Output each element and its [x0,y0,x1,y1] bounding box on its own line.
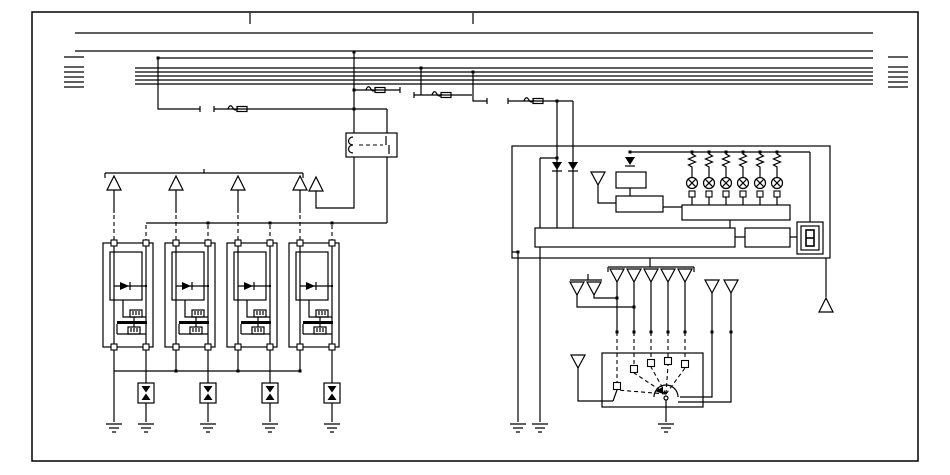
junction-dot [353,108,356,111]
transistor-icon [257,311,263,315]
ground-icon [262,424,278,432]
spark-gap [324,383,340,422]
junction-dot [725,151,728,154]
connector-triangle-up [309,177,323,191]
terminal-square [205,240,211,246]
ground-icon [324,424,340,432]
signal-wires-dashed [617,332,685,353]
lamp-icon [739,179,747,187]
unit-leads [238,350,270,383]
rotor-shaft-icon [664,396,668,400]
unit-wires [238,246,270,344]
cap-terminal-square [648,360,655,367]
junction-dot [556,157,559,160]
gap-triangle-down [204,386,213,393]
cap-terminal-square [614,383,621,390]
igniter-bar [303,321,333,324]
junction-dot [616,297,619,300]
junction-dot [353,89,356,92]
junction-dot [556,100,559,103]
transistor-icon [193,328,199,332]
ground-icon [510,424,526,432]
connector-triangle-down [705,280,719,293]
resistor-icon [740,152,747,177]
ignition-coil-bank [103,240,339,383]
indicator-lamp [755,152,766,205]
ecu-module [512,146,830,422]
spark-gaps [138,383,340,422]
terminal-square [173,240,179,246]
border-tick-marks [250,13,473,24]
supply-drop-wires [146,225,332,240]
connector-triangle-up [169,176,183,190]
coil-primary-box [296,252,328,300]
relay-contact-icon [386,136,389,154]
connector-triangle-down [570,282,584,295]
unit-wires [300,246,332,344]
lamp-icon [705,179,713,187]
resistor-icon [723,152,730,177]
fuse-symbols [228,87,543,112]
diode-icon [625,157,635,165]
ignition-coil-unit [103,240,153,383]
ecu-logic-box-small [616,172,646,188]
junction-dot [633,331,636,334]
diode-icon [552,162,562,170]
terminal-square [235,344,241,350]
ground-icon [138,424,154,432]
ground-icon [106,424,122,432]
ground-icon [532,424,548,432]
terminal-square [173,344,179,350]
indicator-lamp [687,152,698,205]
junction-dot [353,51,356,54]
ignition-coil-unit [227,240,277,383]
connector-triangle-down [610,269,624,282]
coil-primary-box [172,252,204,300]
wiring-schematic [0,0,950,475]
bus-wires [75,33,873,84]
diode-icon [120,282,129,290]
trigger-wires-dashed [114,215,300,240]
junction-dot [650,331,653,334]
indicator-lamp [704,152,715,205]
junction-dot [691,151,694,154]
spark-gap [200,383,216,422]
connector-triangle-up [231,176,245,190]
ignition-coil-unit [165,240,215,383]
lamp-terminal-square [740,191,746,197]
lamp-terminal-square [723,191,729,197]
connector-triangle-down [571,355,585,368]
junction-dot [517,251,520,254]
transistor-icon [195,311,201,315]
coil-primary-box [110,252,142,300]
terminal-square [205,344,211,350]
junction-dot [633,306,636,309]
junction-dot [684,331,687,334]
unit-wires [114,246,146,344]
junction-dot [157,57,160,60]
terminal-square [143,240,149,246]
terminal-square [297,344,303,350]
cap-terminal-square [665,358,672,365]
ignition-coil-unit [289,240,339,383]
diode-icon [182,282,191,290]
indicator-lamp [772,152,783,205]
lamp-icon [688,179,696,187]
lamp-icon [722,179,730,187]
connector-triangle-up [819,298,833,312]
diodes [552,157,635,171]
unit-leads [114,350,146,383]
connector-triangle-up [293,176,307,190]
igniter-bar [241,321,271,324]
junction-dot [145,285,147,287]
diode-icon [568,162,578,170]
connector-triangle-down [627,269,641,282]
gap-triangle-down [328,386,337,393]
lamp-terminal-square [774,191,780,197]
transistor-icon [255,328,261,332]
gap-triangle-up [204,394,213,401]
spark-gap [138,383,154,422]
transistor-icon [131,328,137,332]
junction-dot [730,331,733,334]
resistor-icon [774,152,781,177]
terminal-square [111,240,117,246]
page-border [32,12,918,461]
gap-triangle-up [266,394,275,401]
relay-coil-icon [349,137,354,153]
junction-dot [269,222,272,225]
gap-triangle-down [266,386,275,393]
lamp-terminal-square [706,191,712,197]
ecu-lamp-module [682,205,790,220]
connector-triangle-down [661,269,675,282]
gap-triangle-up [142,394,151,401]
coil-bank-feed [105,169,387,240]
terminal-square [143,344,149,350]
cap-terminal-square [682,361,689,368]
junction-dot [331,285,333,287]
fuse-feed-chain [158,52,573,228]
diode-icon [306,282,315,290]
lamp-icon [756,179,764,187]
junction-dot [667,331,670,334]
junction-dot [629,151,632,154]
connector-triangle-down [644,269,658,282]
lamp-icon [773,179,781,187]
lamp-terminal-square [757,191,763,197]
indicator-lamp [721,152,732,205]
indicator-lamps [687,152,783,205]
junction-dot [207,222,210,225]
unit-leads [300,350,332,383]
unit-wires [176,246,208,344]
junction-dot [759,151,762,154]
junction-dot [742,151,745,154]
junction-dot [420,67,423,70]
transistor-icon [319,311,325,315]
junction-dot [776,151,779,154]
terminal-square [267,240,273,246]
ecu-logic-box-large [616,196,663,212]
junction-dot [175,370,178,373]
connector-wires [570,258,826,422]
resistor-icon [689,152,696,177]
terminal-square [235,240,241,246]
seven-segment-digit [806,230,814,246]
trigger-connector-bar [105,169,303,178]
transistor-icon [133,311,139,315]
ignition-relay [316,133,397,223]
gap-triangle-down [142,386,151,393]
schematic-page [0,0,950,475]
connector-triangle-down [678,269,692,282]
igniter-bar [117,321,147,324]
distributor-section [570,258,826,422]
feed-wires [158,52,573,228]
connector-triangle-down [591,172,605,185]
ground-icon [658,424,674,432]
unit-leads [176,350,208,383]
ecu-main-board [535,228,735,247]
trigger-wires [114,190,300,213]
terminal-square [111,344,117,350]
indicator-lamp [738,152,749,205]
junction-dot [711,331,714,334]
terminal-square [329,344,335,350]
connector-triangle-down [724,280,738,293]
resistor-icon [757,152,764,177]
connector-triangle-down [587,282,601,295]
ground-symbols [106,424,674,432]
lamp-terminal-square [689,191,695,197]
igniter-bar [179,321,209,324]
junction-dot [207,285,209,287]
junction-dot [616,331,619,334]
terminal-square [297,240,303,246]
junction-dot [237,370,240,373]
connector-triangle-up [107,176,121,190]
transistor-icon [317,328,323,332]
ecu-driver-box [745,228,790,247]
junction-dot [331,222,334,225]
power-bus [64,33,908,87]
diode-icon [244,282,253,290]
coil-primary-box [234,252,266,300]
connector-triangles [107,172,833,368]
terminal-square [329,240,335,246]
junction-dot [472,71,475,74]
border-rect [32,12,918,461]
junction-dot [299,370,302,373]
junction-dot [269,285,271,287]
terminal-square [267,344,273,350]
gap-triangle-up [328,394,337,401]
cap-terminal-square [631,366,638,373]
ground-icon [200,424,216,432]
relay-output-wires [316,157,387,223]
spark-gap [262,383,278,422]
junction-dot [708,151,711,154]
resistor-icon [706,152,713,177]
